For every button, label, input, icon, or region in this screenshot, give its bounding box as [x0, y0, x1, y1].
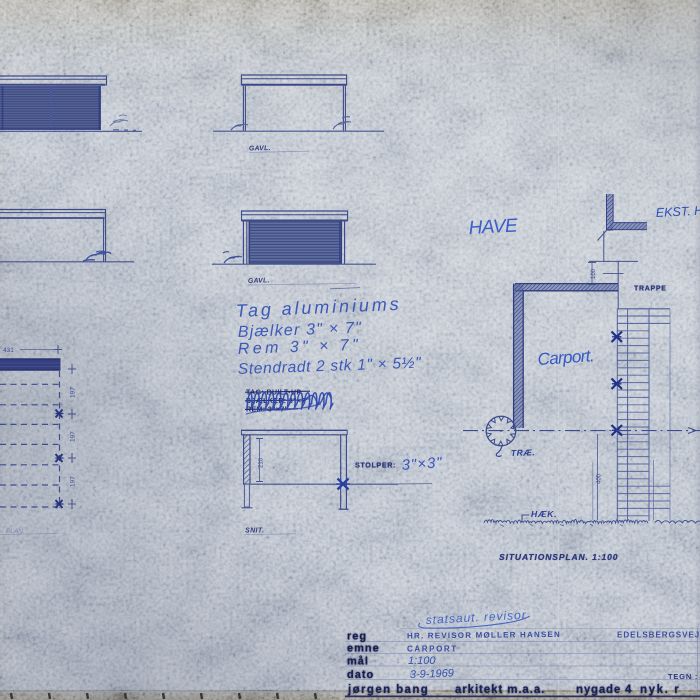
svg-text:210: 210 — [259, 457, 265, 468]
svg-text:197: 197 — [70, 476, 77, 487]
svg-text:nyk. r: nyk. r — [640, 684, 680, 696]
svg-text:emne: emne — [347, 643, 380, 655]
svg-text:HR. REVISOR MØLLER HANSEN: HR. REVISOR MØLLER HANSEN — [407, 630, 561, 641]
svg-text:TRÆ.: TRÆ. — [511, 447, 536, 458]
svg-text:STOLPER:: STOLPER: — [355, 461, 396, 470]
svg-text:431: 431 — [3, 347, 14, 354]
svg-text:3"×3": 3"×3" — [401, 454, 443, 474]
svg-text:GAVL.: GAVL. — [248, 277, 270, 285]
svg-text:HÆK.: HÆK. — [531, 509, 557, 519]
svg-text:GAVL.: GAVL. — [249, 145, 271, 153]
svg-text:CARPORT: CARPORT — [407, 645, 458, 654]
svg-text:mål: mål — [347, 656, 369, 668]
svg-text:arkitekt m.a.a.: arkitekt m.a.a. — [455, 684, 545, 696]
svg-text:SNIT.: SNIT. — [245, 528, 264, 535]
svg-text:Stendradt 2 stk 1" × 5½": Stendradt 2 stk 1" × 5½" — [238, 355, 423, 378]
svg-text:197: 197 — [70, 387, 77, 398]
svg-text:EDELSBERGSVEJ: EDELSBERGSVEJ — [617, 631, 700, 640]
svg-text::: : — [397, 656, 399, 665]
svg-text:BJÆLKER: 3"×7": BJÆLKER: 3"×7" — [246, 398, 309, 405]
svg-text:3-9-1969: 3-9-1969 — [410, 667, 454, 681]
svg-text:EKST. H: EKST. H — [655, 203, 700, 220]
svg-text:Rem 3" × 7": Rem 3" × 7" — [238, 337, 360, 358]
svg-text:nygade 4: nygade 4 — [576, 684, 632, 696]
svg-text:Carport.: Carport. — [537, 346, 595, 369]
svg-text:HAVE: HAVE — [468, 215, 518, 239]
svg-text:197: 197 — [70, 431, 77, 442]
svg-text:400: 400 — [597, 473, 603, 484]
svg-text:TEGN :: TEGN : — [668, 672, 698, 681]
svg-text:SITUATIONSPLAN. 1:100: SITUATIONSPLAN. 1:100 — [499, 552, 618, 562]
svg-text:statsaut. revisor: statsaut. revisor — [425, 608, 527, 627]
svg-text:100: 100 — [591, 268, 597, 279]
svg-text:Tag aluminiums: Tag aluminiums — [235, 294, 399, 321]
svg-text:dato: dato — [347, 669, 374, 681]
svg-text:reg: reg — [347, 631, 367, 643]
svg-text:1:100: 1:100 — [408, 655, 436, 667]
svg-text:jørgen bang: jørgen bang — [347, 684, 429, 696]
svg-text:TRAPPE: TRAPPE — [634, 286, 667, 293]
